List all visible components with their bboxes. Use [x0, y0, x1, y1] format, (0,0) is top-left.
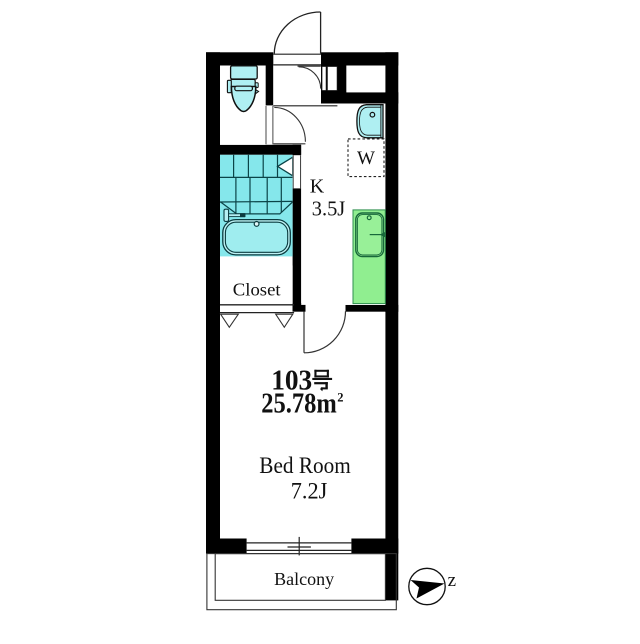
svg-text:Balcony: Balcony — [274, 569, 334, 589]
svg-text:3.5J: 3.5J — [312, 197, 346, 221]
svg-text:Bed Room: Bed Room — [259, 453, 351, 478]
svg-text:Closet: Closet — [233, 279, 281, 299]
svg-text:7.2J: 7.2J — [291, 478, 328, 503]
svg-text:K: K — [310, 176, 325, 198]
svg-text:z: z — [448, 570, 456, 591]
svg-text:W: W — [357, 148, 375, 169]
svg-text:2: 2 — [337, 391, 343, 405]
svg-text:25.78m: 25.78m — [261, 389, 337, 420]
